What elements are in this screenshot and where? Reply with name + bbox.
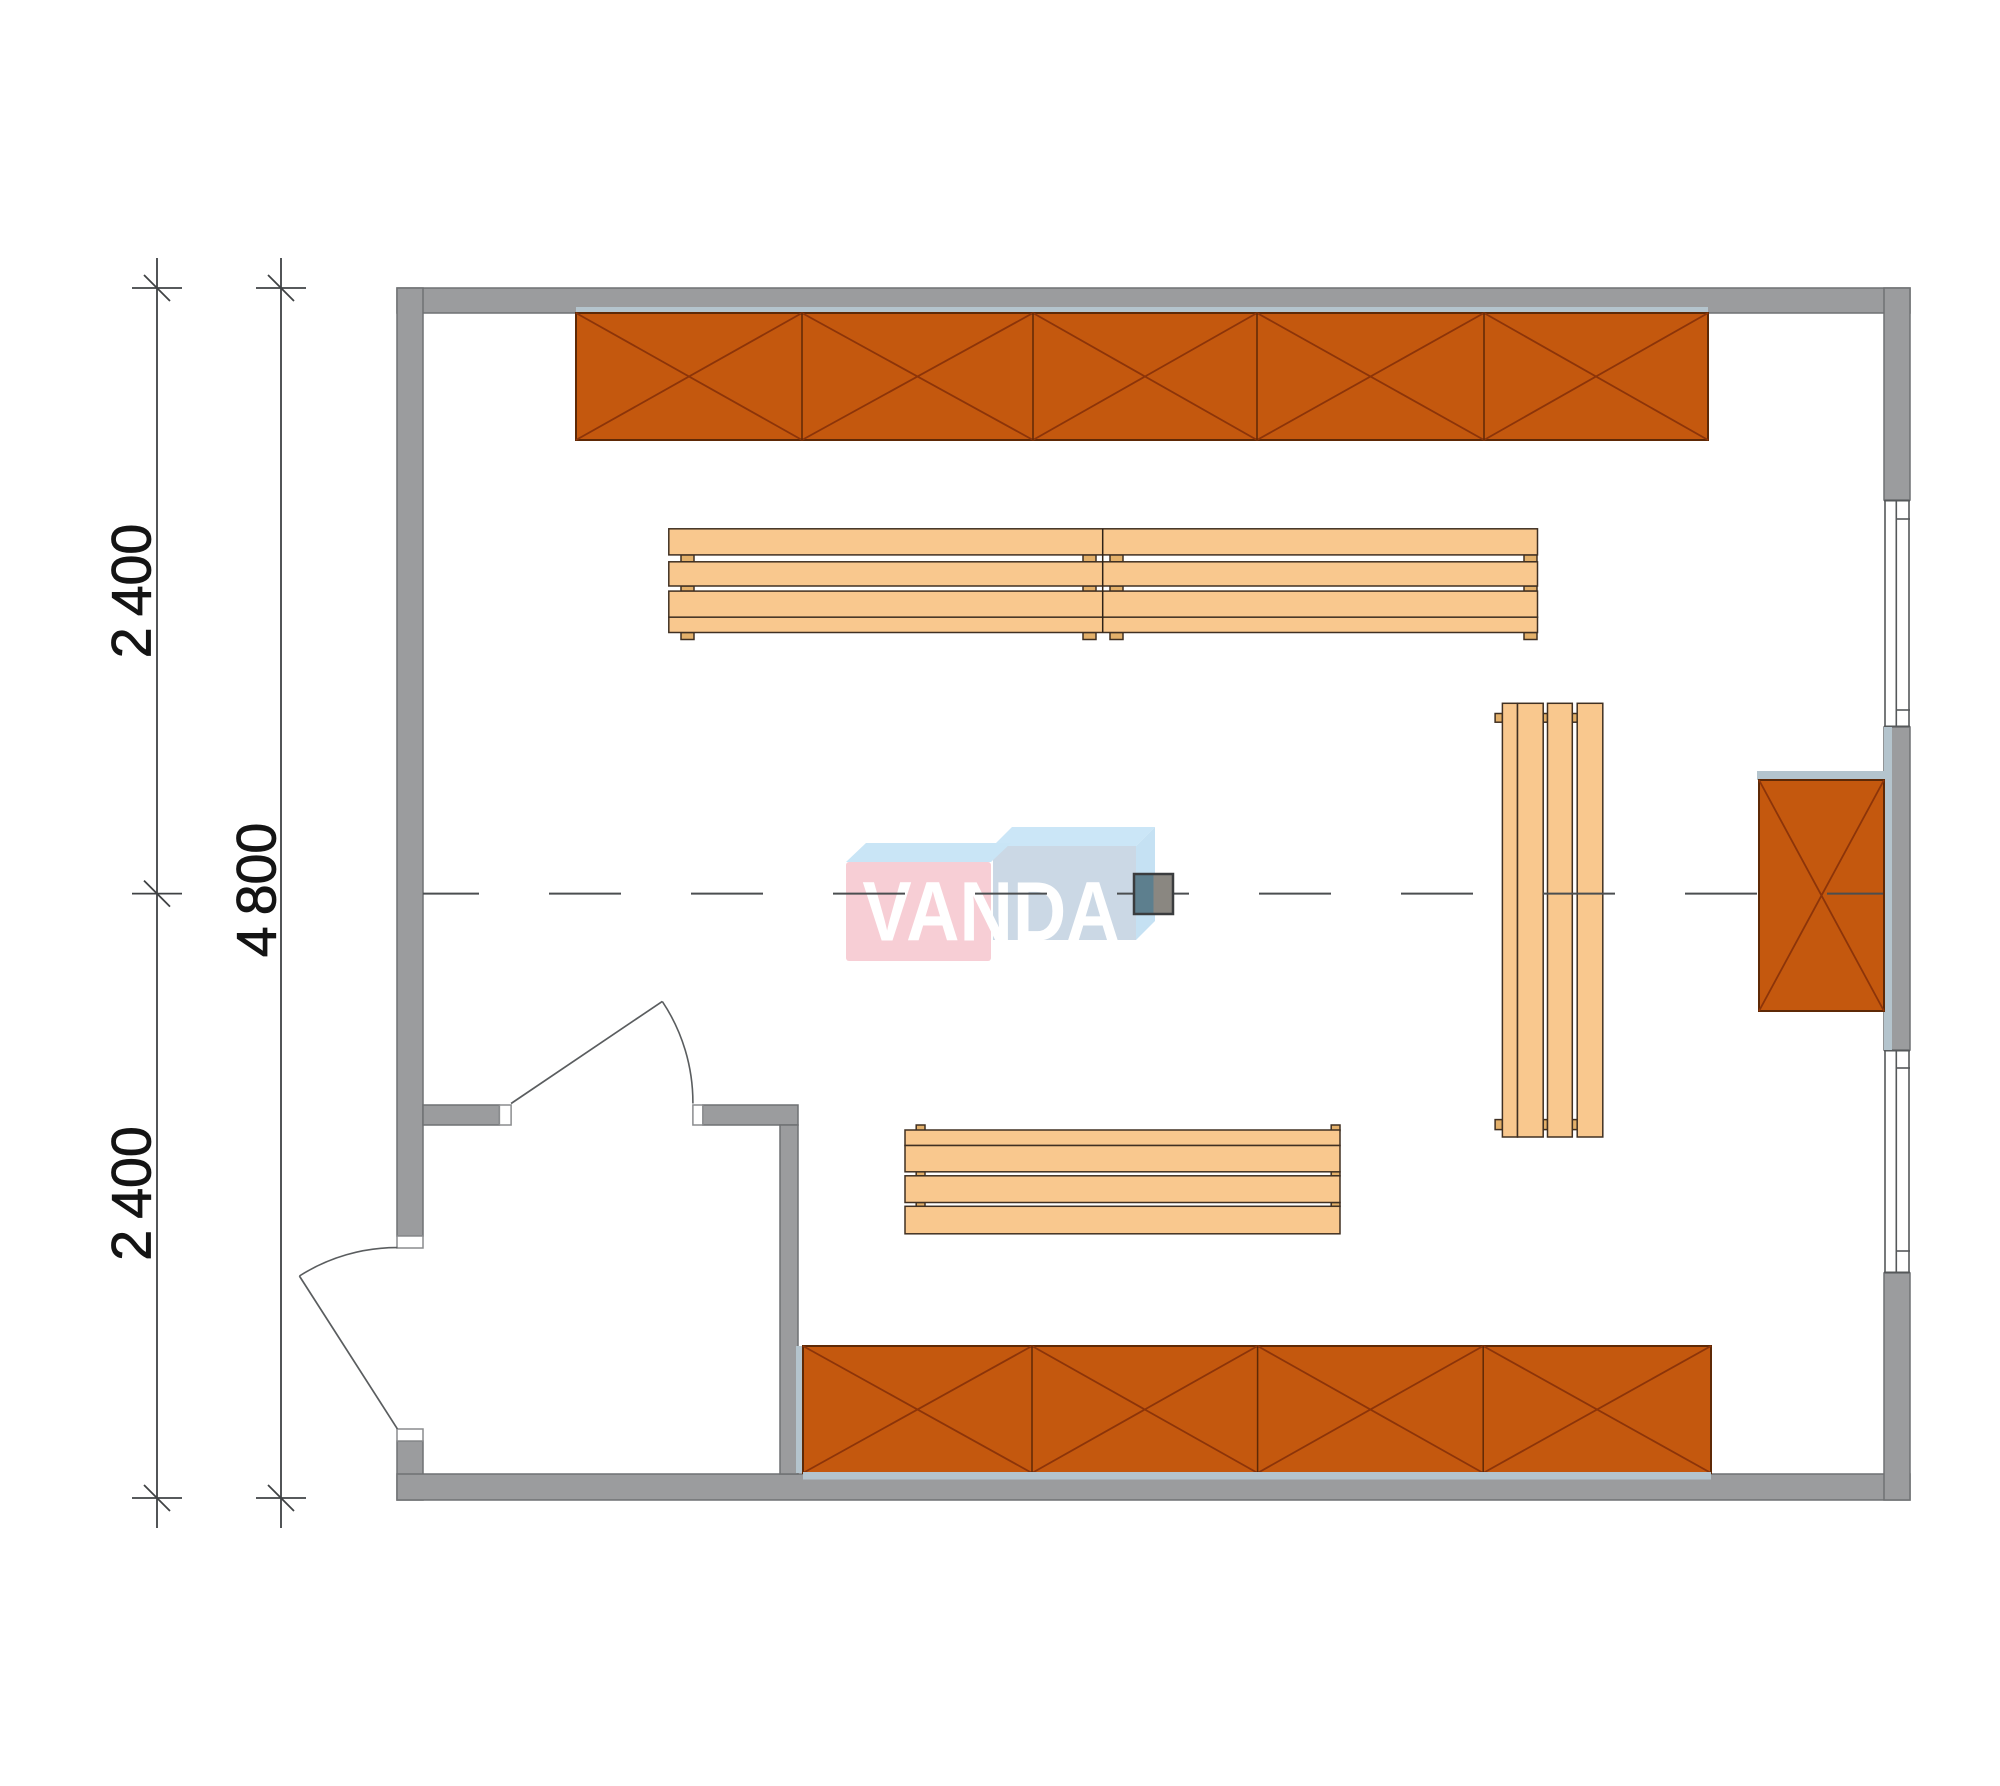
- svg-text:VANDA: VANDA: [862, 864, 1119, 958]
- svg-text:2 400: 2 400: [101, 1126, 163, 1261]
- svg-text:4 800: 4 800: [226, 823, 288, 958]
- svg-text:2 400: 2 400: [101, 524, 163, 659]
